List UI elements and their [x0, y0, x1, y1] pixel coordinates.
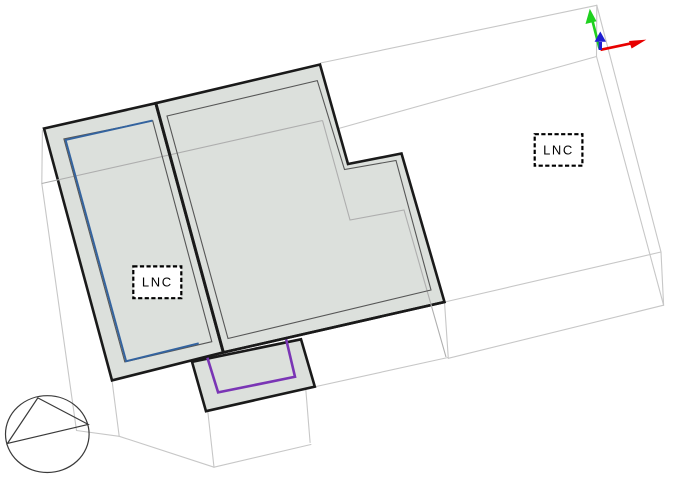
- svg-text:LNC: LNC: [142, 275, 173, 290]
- svg-text:LNC: LNC: [543, 142, 574, 157]
